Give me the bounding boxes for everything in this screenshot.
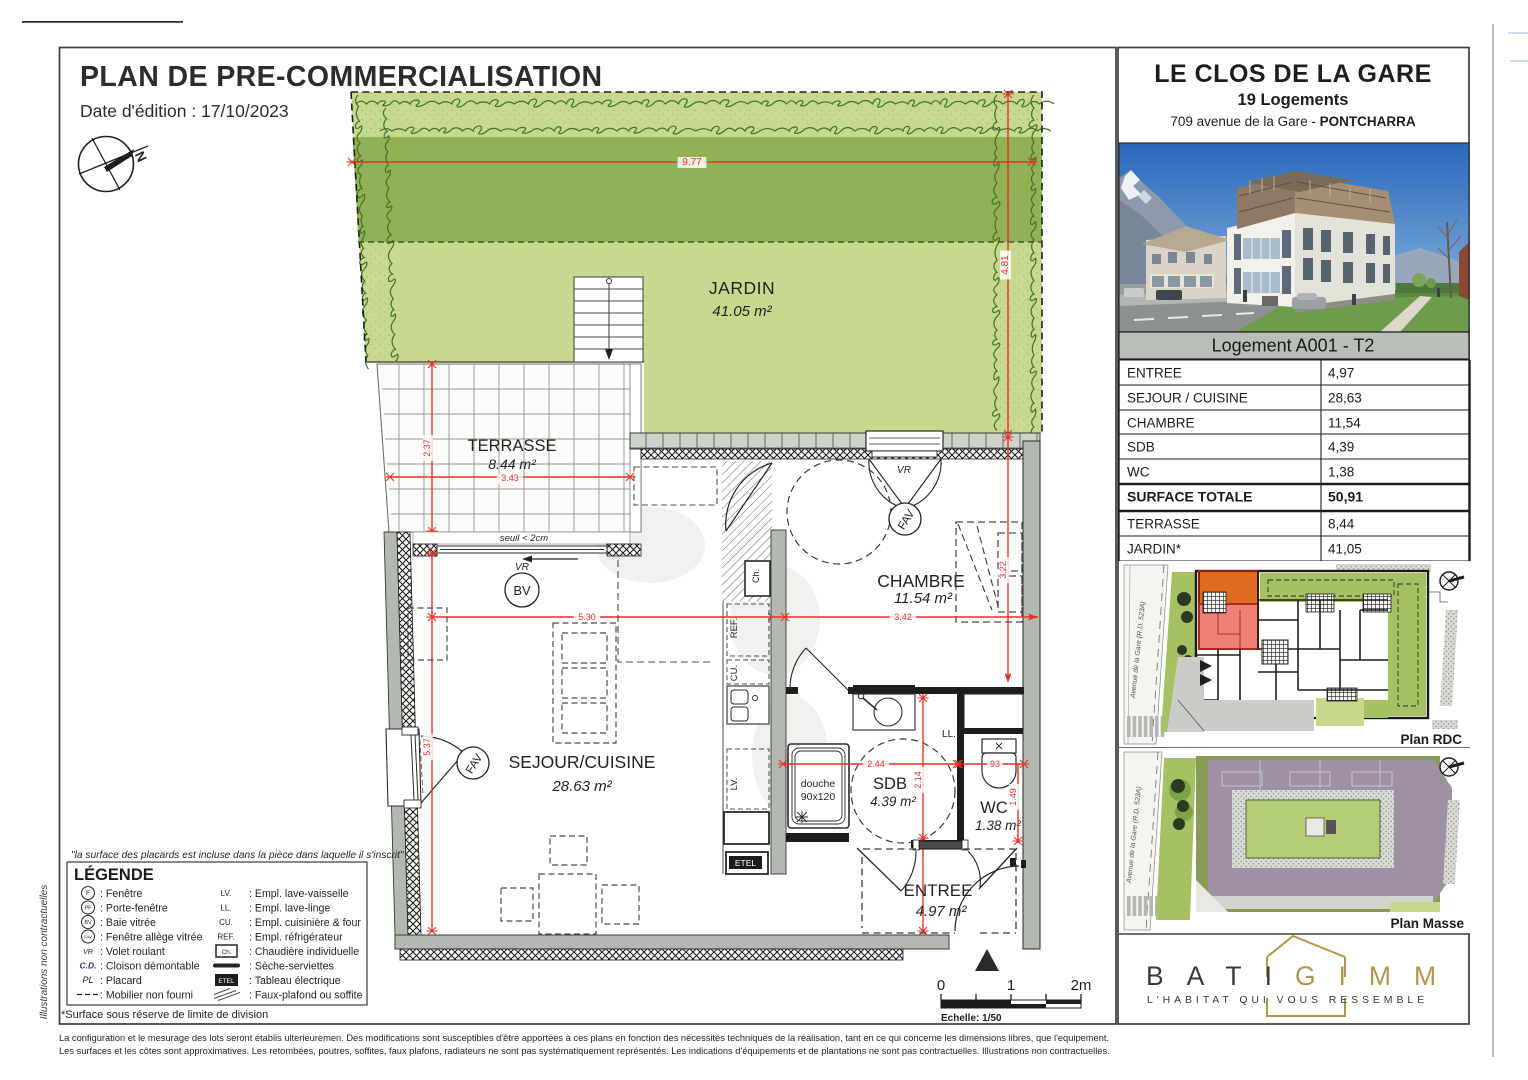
svg-text:8.44 m²: 8.44 m² (488, 456, 537, 472)
svg-text:WC: WC (1127, 465, 1150, 480)
svg-text:4,97: 4,97 (1328, 366, 1354, 381)
svg-text:: Volet roulant: : Volet roulant (100, 946, 165, 958)
svg-text:: Tableau électrique: : Tableau électrique (249, 975, 341, 987)
svg-text:VR: VR (515, 562, 529, 573)
svg-text:Ch.: Ch. (221, 949, 231, 956)
svg-text:: Fenêtre allège vitrée: : Fenêtre allège vitrée (100, 932, 203, 944)
svg-text:FAV: FAV (84, 935, 92, 940)
svg-text:L'HABITAT QUI VOUS RESSEMBLE: L'HABITAT QUI VOUS RESSEMBLE (1147, 994, 1428, 1006)
svg-text:SDB: SDB (1127, 440, 1155, 455)
svg-text:: Mobilier non fourni: : Mobilier non fourni (100, 990, 193, 1002)
svg-text:3.22: 3.22 (998, 561, 1008, 579)
svg-text:PF: PF (84, 906, 92, 912)
svg-text:Date d'édition : 17/10/2023: Date d'édition : 17/10/2023 (80, 101, 289, 121)
svg-text:: Fenêtre: : Fenêtre (100, 888, 143, 900)
svg-text:LÉGENDE: LÉGENDE (74, 865, 154, 884)
svg-text:90x120: 90x120 (801, 791, 836, 803)
svg-text:: Faux-plafond ou soffite: : Faux-plafond ou soffite (249, 990, 363, 1002)
svg-text:: Chaudière individuelle: : Chaudière individuelle (249, 946, 359, 958)
svg-text:3.43: 3.43 (501, 473, 519, 483)
svg-text:CHAMBRE: CHAMBRE (877, 571, 965, 591)
svg-text:TERRASSE: TERRASSE (1127, 517, 1200, 532)
svg-text:50,91: 50,91 (1328, 489, 1363, 505)
svg-text:BATIGIMM: BATIGIMM (1146, 961, 1459, 991)
svg-text:28,63: 28,63 (1328, 391, 1362, 406)
svg-text:seuil < 2cm: seuil < 2cm (500, 533, 548, 544)
svg-text:28.63 m²: 28.63 m² (551, 778, 612, 795)
svg-text:8,44: 8,44 (1328, 517, 1355, 532)
svg-text:Echelle: 1/50: Echelle: 1/50 (941, 1013, 1002, 1024)
svg-text:4.81: 4.81 (1000, 255, 1011, 275)
svg-text:SURFACE TOTALE: SURFACE TOTALE (1127, 489, 1253, 505)
svg-text:1.49: 1.49 (1008, 788, 1018, 806)
svg-text:LL.: LL. (220, 904, 231, 913)
svg-text:Illustrations non contractuell: Illustrations non contractuelles (39, 885, 50, 1020)
svg-text:LV.: LV. (729, 778, 740, 791)
svg-text:BV: BV (84, 920, 92, 926)
svg-text:0: 0 (937, 977, 945, 994)
svg-text:: Porte-fenêtre: : Porte-fenêtre (100, 903, 168, 915)
svg-text:: Baie vitrée: : Baie vitrée (100, 917, 156, 929)
svg-text:Plan Masse: Plan Masse (1390, 916, 1464, 931)
svg-text:2.37: 2.37 (422, 439, 432, 457)
svg-text:"la surface des placards est: "la surface des placards est incluse dan… (71, 850, 404, 861)
svg-text:ETEL: ETEL (218, 978, 235, 985)
svg-text:LE CLOS DE LA GARE: LE CLOS DE LA GARE (1154, 60, 1432, 88)
svg-text:ETEL: ETEL (735, 858, 757, 868)
svg-text:4.39 m²: 4.39 m² (870, 794, 916, 809)
svg-text:Ch.: Ch. (751, 569, 761, 583)
svg-text:5.37: 5.37 (422, 738, 432, 756)
svg-text:WC: WC (980, 799, 1008, 817)
svg-text:2.44: 2.44 (867, 759, 885, 769)
svg-text:: Placard: : Placard (100, 975, 142, 987)
svg-text:Les surfaces et les côtes sont: Les surfaces et les côtes sont approxima… (59, 1046, 1110, 1056)
svg-text:SEJOUR/CUISINE: SEJOUR/CUISINE (509, 752, 656, 772)
svg-text:: Empl. réfrigérateur: : Empl. réfrigérateur (249, 932, 343, 944)
svg-text:9.77: 9.77 (682, 157, 702, 168)
svg-text:REF.: REF. (217, 933, 234, 942)
svg-text:709 avenue de la Gare - PONTCH: 709 avenue de la Gare - PONTCHARRA (1170, 114, 1416, 129)
svg-text:CU.: CU. (219, 918, 233, 927)
svg-text:JARDIN*: JARDIN* (1127, 542, 1182, 557)
svg-text:1: 1 (1007, 977, 1015, 994)
svg-text:REF.: REF. (729, 618, 740, 639)
svg-text:LL.: LL. (942, 729, 956, 740)
svg-text:5.30: 5.30 (578, 612, 596, 622)
svg-text:1.38 m²: 1.38 m² (975, 818, 1021, 833)
svg-text:2.14: 2.14 (913, 771, 923, 789)
svg-text:19 Logements: 19 Logements (1238, 91, 1349, 109)
svg-text:41.05 m²: 41.05 m² (712, 303, 772, 320)
svg-text:BV: BV (513, 583, 531, 598)
svg-text:SEJOUR / CUISINE: SEJOUR / CUISINE (1127, 391, 1248, 406)
svg-text:JARDIN: JARDIN (709, 278, 775, 298)
svg-text:Plan RDC: Plan RDC (1400, 732, 1462, 747)
svg-text:VR: VR (897, 465, 911, 476)
svg-text:F: F (86, 890, 90, 897)
svg-text:1,38: 1,38 (1328, 465, 1354, 480)
svg-text:ENTREE: ENTREE (904, 881, 973, 900)
svg-text:SDB: SDB (873, 775, 907, 793)
svg-text:douche: douche (801, 778, 836, 790)
svg-text:PLAN DE PRE-COMMERCIALISATION: PLAN DE PRE-COMMERCIALISATION (80, 61, 603, 93)
svg-text:PL: PL (82, 975, 93, 985)
svg-text:ENTREE: ENTREE (1127, 366, 1182, 381)
svg-text:CHAMBRE: CHAMBRE (1127, 416, 1195, 431)
svg-text:Logement A001 - T2: Logement A001 - T2 (1212, 336, 1375, 356)
svg-text:93: 93 (990, 759, 1000, 769)
svg-text:: Empl. cuisinière & four: : Empl. cuisinière & four (249, 917, 361, 929)
svg-text:LV.: LV. (221, 889, 232, 898)
svg-text:: Cloison démontable: : Cloison démontable (100, 961, 200, 973)
svg-text:La configuration et le mesurag: La configuration et le mesurage des lots… (59, 1033, 1109, 1043)
svg-text:: Empl. lave-vaisselle: : Empl. lave-vaisselle (249, 888, 349, 900)
svg-text:11,54: 11,54 (1328, 416, 1361, 431)
svg-text:3.42: 3.42 (894, 612, 912, 622)
svg-text:: Empl. lave-linge: : Empl. lave-linge (249, 903, 330, 915)
svg-text:2m: 2m (1071, 977, 1092, 994)
svg-text:*Surface sous réserve de limit: *Surface sous réserve de limite de divis… (61, 1009, 268, 1021)
svg-text:CU.: CU. (729, 665, 740, 681)
svg-text:VR: VR (83, 949, 93, 956)
svg-text:C.D.: C.D. (80, 961, 97, 971)
svg-text:4,39: 4,39 (1328, 440, 1354, 455)
svg-text:: Sèche-serviettes: : Sèche-serviettes (249, 961, 334, 973)
svg-text:TERRASSE: TERRASSE (468, 437, 557, 455)
svg-text:11.54 m²: 11.54 m² (894, 590, 953, 607)
svg-text:41,05: 41,05 (1328, 542, 1362, 557)
